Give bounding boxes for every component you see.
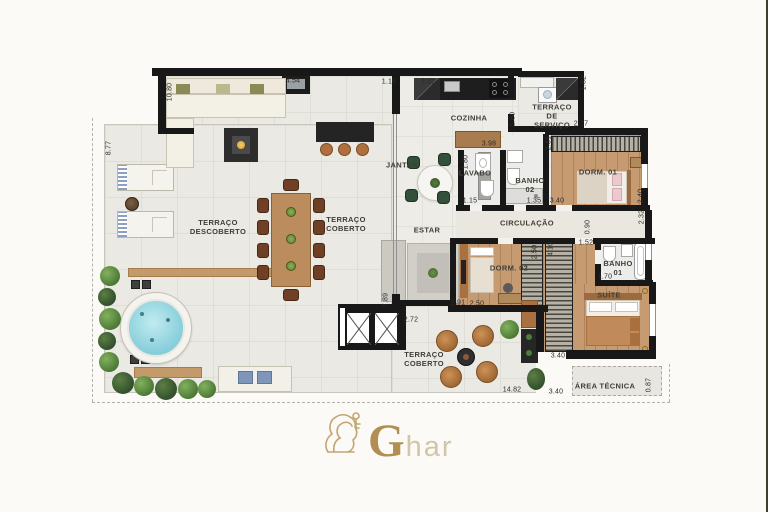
jantar-chair: [437, 191, 450, 204]
stove-burner: [492, 82, 497, 87]
logo-text-g: G: [368, 422, 405, 461]
suite-throw: [630, 333, 640, 345]
door-gap: [470, 205, 482, 211]
window: [649, 304, 656, 336]
dashed-outline-right: [669, 364, 670, 402]
grill-item: [526, 350, 532, 356]
room-label: JANTAR: [386, 161, 418, 170]
bush: [178, 379, 198, 399]
room-label: CIRCULAÇÃO: [500, 219, 554, 228]
table-decor: [463, 354, 469, 360]
room-label: ESTAR: [414, 226, 441, 235]
bench-pillow: [238, 371, 253, 384]
lavabo-basin: [479, 158, 487, 168]
terrace-plant: [500, 320, 519, 339]
wall: [566, 350, 656, 359]
suite-pillow: [615, 302, 638, 312]
sofa-pillow: [176, 84, 190, 94]
room-label: LAVABO: [459, 169, 492, 178]
jantar-chair: [405, 189, 418, 202]
rattan-chair: [440, 366, 462, 388]
table-plate: [286, 261, 296, 271]
rattan-chair: [472, 325, 494, 347]
room-label: ÁREA TÉCNICA: [575, 382, 636, 391]
rattan-chair: [476, 361, 498, 383]
room-label: DORM. 02: [490, 264, 528, 273]
suite-throw: [630, 318, 640, 331]
dimension-label: 4.54: [286, 78, 300, 85]
lounger-fold: [152, 217, 167, 232]
sofa-living-chaise: [166, 118, 194, 168]
dimension-label: 2.40: [638, 189, 645, 203]
dimension-label: 2.72: [404, 317, 418, 324]
room-label: SUÍTE: [597, 291, 621, 300]
dimension-label: 1.16: [382, 79, 396, 86]
banho01-sink: [621, 244, 633, 257]
dimension-label: 0.90: [585, 220, 592, 234]
dimension-label: 1.35: [527, 198, 541, 205]
dining-chair: [257, 220, 269, 235]
dimension-label: 1.82: [581, 76, 588, 90]
dimension-label: 7.89: [383, 293, 390, 307]
dimension-label: 2.32: [639, 210, 646, 224]
dimension-label: 1.15: [463, 198, 477, 205]
glass-door: [393, 114, 397, 294]
sofa-pillow: [216, 84, 230, 94]
dimension-label: 10.80: [167, 83, 174, 102]
wall: [158, 68, 166, 132]
jacuzzi-jet: [166, 318, 170, 322]
bar-stool: [320, 143, 333, 156]
stool: [142, 280, 151, 289]
dorm02-desk: [498, 293, 522, 304]
door-gap: [556, 205, 572, 211]
dimension-label: 2.50: [470, 301, 484, 308]
kitchen-sink: [444, 81, 460, 92]
lounger-fold: [152, 170, 167, 185]
bush: [99, 308, 121, 330]
wall: [450, 238, 456, 308]
dining-chair: [313, 265, 325, 280]
lounger-towel: [118, 165, 127, 190]
wall: [645, 210, 652, 238]
dorm01-headboard: [627, 170, 631, 205]
dining-chair: [283, 179, 299, 191]
jantar-centerpiece: [430, 178, 440, 188]
wall: [536, 310, 544, 352]
dimension-label: 2.50: [532, 245, 539, 259]
table-plate: [286, 234, 296, 244]
dorm02-chair: [503, 283, 513, 293]
logo-text-har: har: [406, 434, 454, 460]
stool: [131, 280, 140, 289]
terrace-bench: [218, 366, 292, 392]
elevator-door-strip: [340, 308, 345, 346]
wall: [394, 68, 522, 76]
bush: [100, 266, 120, 286]
bush: [112, 372, 134, 394]
fireplace-flame: [237, 141, 245, 149]
dining-chair: [257, 198, 269, 213]
dimension-label: 1.80: [463, 155, 470, 169]
sofa-living-seat: [166, 94, 286, 118]
window: [641, 164, 648, 188]
wall: [518, 71, 582, 77]
suite-wardrobe: [545, 241, 573, 352]
bush: [155, 378, 177, 400]
banho02-sink: [507, 150, 523, 163]
bench-pillow: [257, 371, 272, 384]
dining-chair: [283, 289, 299, 301]
dining-chair: [257, 243, 269, 258]
jantar-chair: [438, 153, 451, 166]
suite-pillow: [589, 302, 612, 312]
room-label: TERRAÇO DESCOBERTO: [190, 218, 246, 236]
sofa-pillow: [250, 84, 264, 94]
dimension-label: 3.40: [551, 353, 565, 360]
room-label: TERRAÇO COBERTO: [326, 215, 366, 233]
dimension-label: 3.32: [421, 79, 435, 86]
dorm02-bed-pillow: [470, 247, 494, 256]
wall: [641, 128, 648, 164]
wall: [152, 68, 394, 76]
bar-stool: [338, 143, 351, 156]
bush: [98, 332, 116, 350]
dimension-label: 4.10: [548, 242, 555, 256]
wall: [158, 128, 194, 134]
bush: [98, 288, 116, 306]
dashed-outline-bottom: [92, 402, 670, 403]
dorm01-pillow: [612, 188, 622, 201]
bar-stool: [356, 143, 369, 156]
room-label: TERRAÇO DE SERVIÇO: [532, 103, 572, 130]
dimension-label: 1.80: [510, 112, 517, 126]
wall: [456, 205, 650, 211]
elevator-shaft: [346, 312, 370, 344]
dimension-label: 3.40: [550, 198, 564, 205]
door-gap: [595, 250, 601, 264]
dimension-label: 2.27: [574, 121, 588, 128]
dashed-outline-left: [92, 118, 93, 402]
lavabo-wc: [480, 180, 494, 197]
jacuzzi-water: [127, 299, 185, 357]
brand-logo: G har: [320, 408, 453, 461]
lounger-side-table: [125, 197, 139, 211]
jacuzzi-jet: [150, 338, 154, 342]
grill-item: [526, 334, 532, 340]
wall: [500, 150, 506, 208]
jacuzzi-jet: [140, 312, 144, 316]
dimension-label: 14.82: [503, 387, 522, 394]
dining-chair: [313, 220, 325, 235]
table-plate: [286, 207, 296, 217]
dimension-label: 2.31: [546, 136, 553, 150]
door-gap: [514, 205, 526, 211]
lion-icon: [320, 408, 366, 461]
rattan-chair: [436, 330, 458, 352]
suite-wall-lamp: [642, 288, 648, 294]
dining-chair: [257, 265, 269, 280]
room-label: BANHO 02: [515, 176, 544, 194]
shaft-x-icon: [347, 313, 371, 345]
dining-chair: [313, 243, 325, 258]
dimension-label: 3.40: [549, 389, 563, 396]
room-label: COZINHA: [451, 114, 488, 123]
elevator-shaft: [374, 312, 398, 344]
bush: [198, 380, 216, 398]
dimension-label: 8.77: [106, 141, 113, 155]
estar-plant: [428, 268, 438, 278]
washer-drum: [543, 90, 552, 99]
dining-chair: [313, 198, 325, 213]
bush: [527, 368, 545, 390]
dimension-label: 0.87: [646, 378, 653, 392]
dorm01-wardrobe: [551, 136, 641, 152]
banho01-tub-inner: [637, 246, 644, 276]
wall: [508, 76, 514, 98]
door-gap: [498, 238, 513, 244]
shaft-x-icon: [375, 313, 399, 345]
dorm02-bed: [470, 257, 494, 293]
dimension-label: 3.98: [482, 141, 496, 148]
lounger-towel: [118, 212, 127, 237]
room-label: DORM. 01: [579, 168, 617, 177]
bush: [134, 376, 154, 396]
wall: [595, 280, 653, 286]
service-cabinet: [556, 78, 578, 100]
bush: [99, 352, 119, 372]
dimension-label: 1.70: [598, 274, 612, 281]
dimension-label: 2.91: [451, 300, 465, 307]
room-label: TERRAÇO COBERTO: [404, 350, 444, 368]
dimension-label: 1.52: [579, 240, 593, 247]
bar-counter: [316, 122, 374, 142]
stove-burner: [492, 90, 497, 95]
dorm02-tv: [461, 260, 466, 284]
